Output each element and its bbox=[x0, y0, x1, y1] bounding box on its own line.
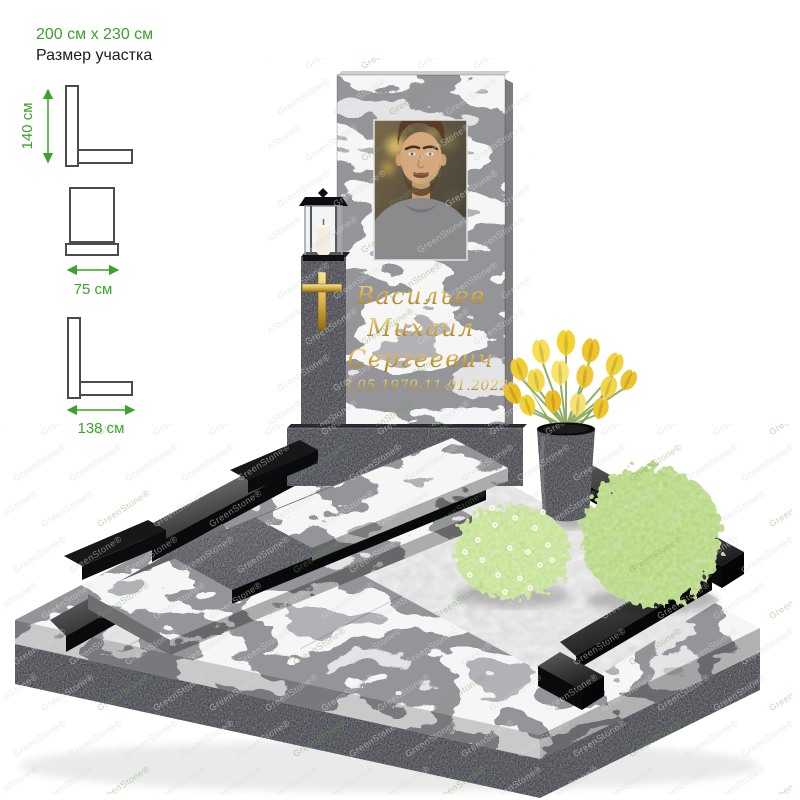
monument-render: Васильев Михаил Сергеевич 08.05.1979-11.… bbox=[0, 0, 800, 800]
tulip-bouquet bbox=[501, 330, 640, 421]
flower-bush bbox=[454, 505, 570, 608]
product-render-canvas: 200 см x 230 см Размер участка 140 см 75… bbox=[0, 0, 800, 800]
epitaph-name: Михаил bbox=[366, 314, 475, 342]
lantern-cap bbox=[299, 197, 348, 206]
stele: Васильев Михаил Сергеевич 08.05.1979-11.… bbox=[333, 71, 513, 432]
epitaph-patronymic: Сергеевич bbox=[348, 345, 494, 373]
lantern-pillar bbox=[299, 188, 350, 424]
candle bbox=[317, 225, 330, 255]
epitaph-dates: 08.05.1979-11.01.2022 bbox=[333, 378, 509, 394]
portrait-photo bbox=[370, 108, 472, 260]
epitaph-surname: Васильев bbox=[355, 282, 485, 310]
